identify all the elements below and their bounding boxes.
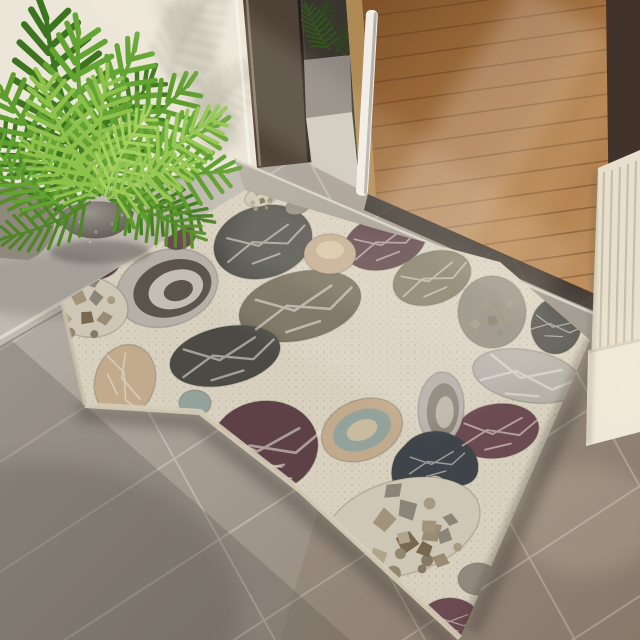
entrance-doormat-photo — [0, 0, 640, 640]
fluted-white-pillar — [586, 150, 640, 446]
scene-canvas — [0, 0, 640, 640]
pot-shadow — [50, 240, 150, 264]
pillar-base — [586, 340, 640, 446]
interior-step — [304, 55, 352, 118]
